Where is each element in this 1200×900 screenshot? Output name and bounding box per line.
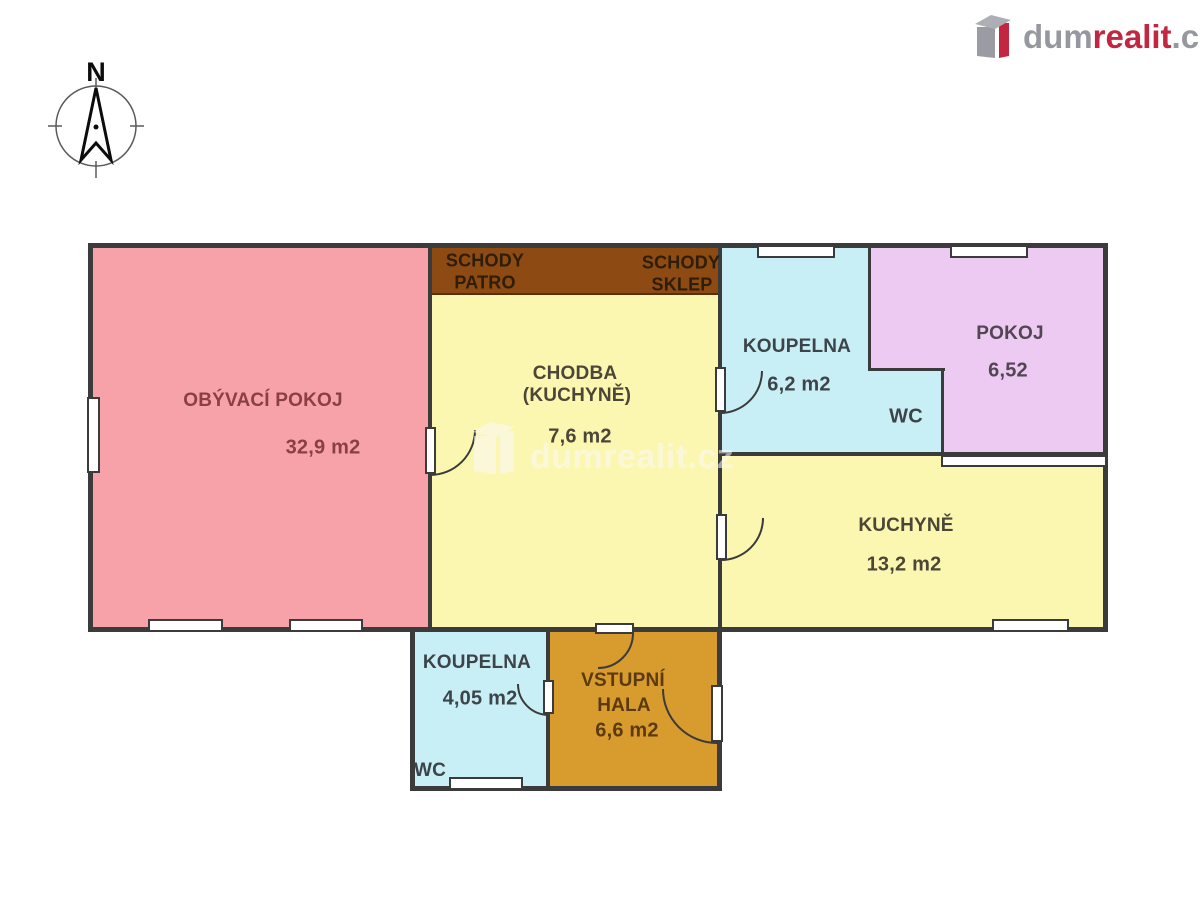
label-schody-sklep-1: SCHODY bbox=[642, 253, 720, 274]
label-pokoj-area: 6,52 bbox=[988, 360, 1028, 383]
watermark-cube-icon bbox=[470, 418, 516, 476]
window-living-bottom-1 bbox=[148, 619, 223, 632]
room-pokoj-lower bbox=[943, 370, 1105, 456]
label-wc-dolni: WC bbox=[414, 760, 446, 782]
logo-wordmark: dumrealit.cz bbox=[1023, 20, 1200, 53]
watermark: dumrealit.cz bbox=[470, 418, 734, 476]
room-pokoj-upper bbox=[870, 245, 1105, 371]
door-leaf-koupelna-dolni bbox=[543, 680, 554, 714]
logo-realit: realit bbox=[1093, 18, 1172, 55]
label-kuchyne: KUCHYNĚ bbox=[858, 515, 953, 537]
logo-cz: .cz bbox=[1172, 18, 1200, 55]
label-wc-horni: WC bbox=[889, 406, 923, 429]
door-leaf-living bbox=[425, 427, 436, 474]
room-kuchyne bbox=[720, 455, 1105, 629]
label-schody-sklep-2: SKLEP bbox=[651, 275, 712, 296]
label-vstupni-hala-2: HALA bbox=[597, 695, 651, 717]
window-kuchyne-bottom bbox=[992, 619, 1069, 632]
dumrealit-cube-icon bbox=[973, 12, 1013, 60]
window-living-bottom-2 bbox=[289, 619, 363, 632]
wall-blue-purple bbox=[868, 243, 871, 371]
label-koupelna-dolni: KOUPELNA bbox=[423, 652, 531, 674]
label-chodba-1: CHODBA bbox=[533, 363, 618, 385]
label-vstupni-hala-1: VSTUPNÍ bbox=[581, 670, 665, 692]
watermark-text: dumrealit.cz bbox=[530, 440, 734, 476]
window-living-left bbox=[87, 397, 100, 473]
window-koupelna-dolni bbox=[449, 777, 523, 790]
label-chodba-2: (KUCHYNĚ) bbox=[523, 385, 631, 407]
window-koupelna-top bbox=[757, 245, 835, 258]
label-koupelna-horni-area: 6,2 m2 bbox=[767, 374, 830, 397]
window-pokoj-top bbox=[950, 245, 1028, 258]
wall-right bbox=[1103, 243, 1108, 632]
door-leaf-entrance bbox=[711, 685, 723, 742]
compass-north-label: N bbox=[86, 57, 106, 87]
room-obyvaci-pokoj bbox=[90, 245, 430, 629]
wall-notch-vert bbox=[941, 368, 944, 456]
label-vstupni-hala-area: 6,6 m2 bbox=[595, 720, 658, 743]
door-leaf-kuchyne bbox=[716, 514, 727, 560]
logo-dum: dum bbox=[1023, 18, 1093, 55]
wall-notch-horiz bbox=[868, 368, 945, 371]
label-koupelna-horni: KOUPELNA bbox=[743, 336, 851, 358]
floorplan-page: N dumrealit.cz bbox=[0, 0, 1200, 900]
label-obyvaci-pokoj: OBÝVACÍ POKOJ bbox=[183, 390, 343, 412]
label-pokoj: POKOJ bbox=[976, 323, 1044, 345]
label-schody-patro-1: SCHODY bbox=[446, 251, 524, 272]
door-leaf-koupelna-horni bbox=[715, 367, 726, 412]
compass-rose: N bbox=[40, 55, 155, 183]
dumrealit-logo: dumrealit.cz bbox=[973, 12, 1200, 60]
window-pokoj-kuchyne bbox=[941, 455, 1107, 467]
label-kuchyne-area: 13,2 m2 bbox=[867, 554, 942, 577]
door-leaf-hala-top bbox=[595, 623, 634, 634]
label-schody-patro-2: PATRO bbox=[454, 273, 515, 294]
label-obyvaci-area: 32,9 m2 bbox=[286, 437, 361, 460]
label-koupelna-dolni-area: 4,05 m2 bbox=[443, 688, 518, 711]
